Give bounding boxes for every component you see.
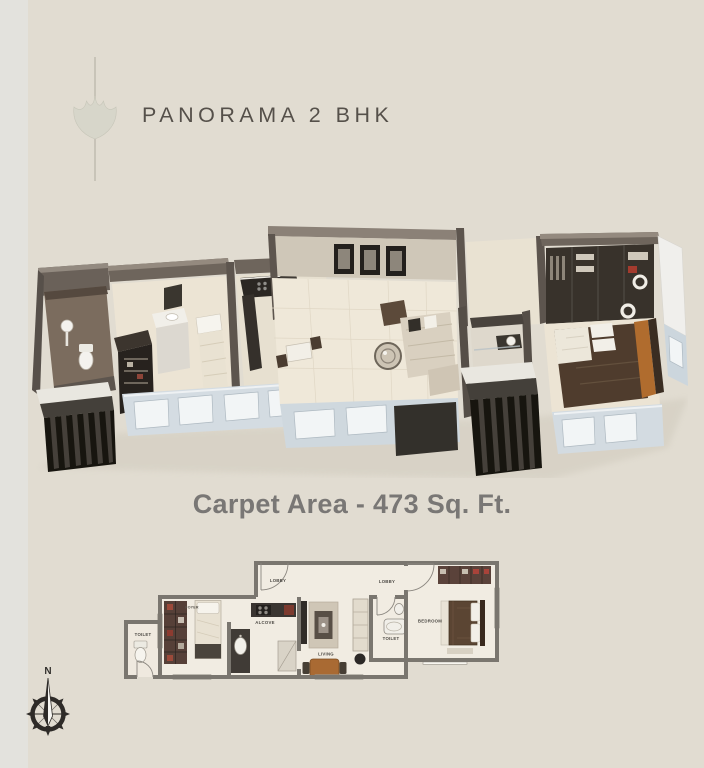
label-lobby-right: LOBBY [379, 579, 395, 584]
carpet-area-text: Carpet Area - 473 Sq. Ft. [0, 489, 704, 520]
render-lobby-corridor [456, 228, 548, 328]
render-bedroom-right [540, 232, 664, 414]
floor-plan-3d-render [28, 218, 688, 478]
label-toilet-left: TOILET [135, 632, 152, 637]
fan-leaf-icon [74, 57, 117, 181]
label-foyer: FOYER [185, 606, 199, 610]
render-duct-louver-left [36, 382, 116, 472]
page-title: PANORAMA 2 BHK [142, 103, 393, 128]
floor-plan-2d: TOILET FOYER ALCOVE LOBBY LOBBY LIVING T… [123, 556, 503, 686]
render-toilet-left [32, 263, 116, 400]
compass-graphic [26, 678, 70, 736]
page-left-margin-strip [0, 0, 28, 768]
brand-logo [60, 55, 130, 185]
compass-rose: N [18, 656, 78, 758]
compass-north-label: N [44, 666, 51, 677]
label-alcove: ALCOVE [255, 620, 274, 625]
wall-art-frames [334, 244, 406, 276]
label-toilet-mid: TOILET [383, 636, 400, 641]
render-living-room [268, 226, 460, 406]
label-living: LIVING [318, 652, 334, 657]
label-lobby-left: LOBBY [270, 578, 286, 583]
label-bedroom: BEDROOM [418, 619, 442, 624]
